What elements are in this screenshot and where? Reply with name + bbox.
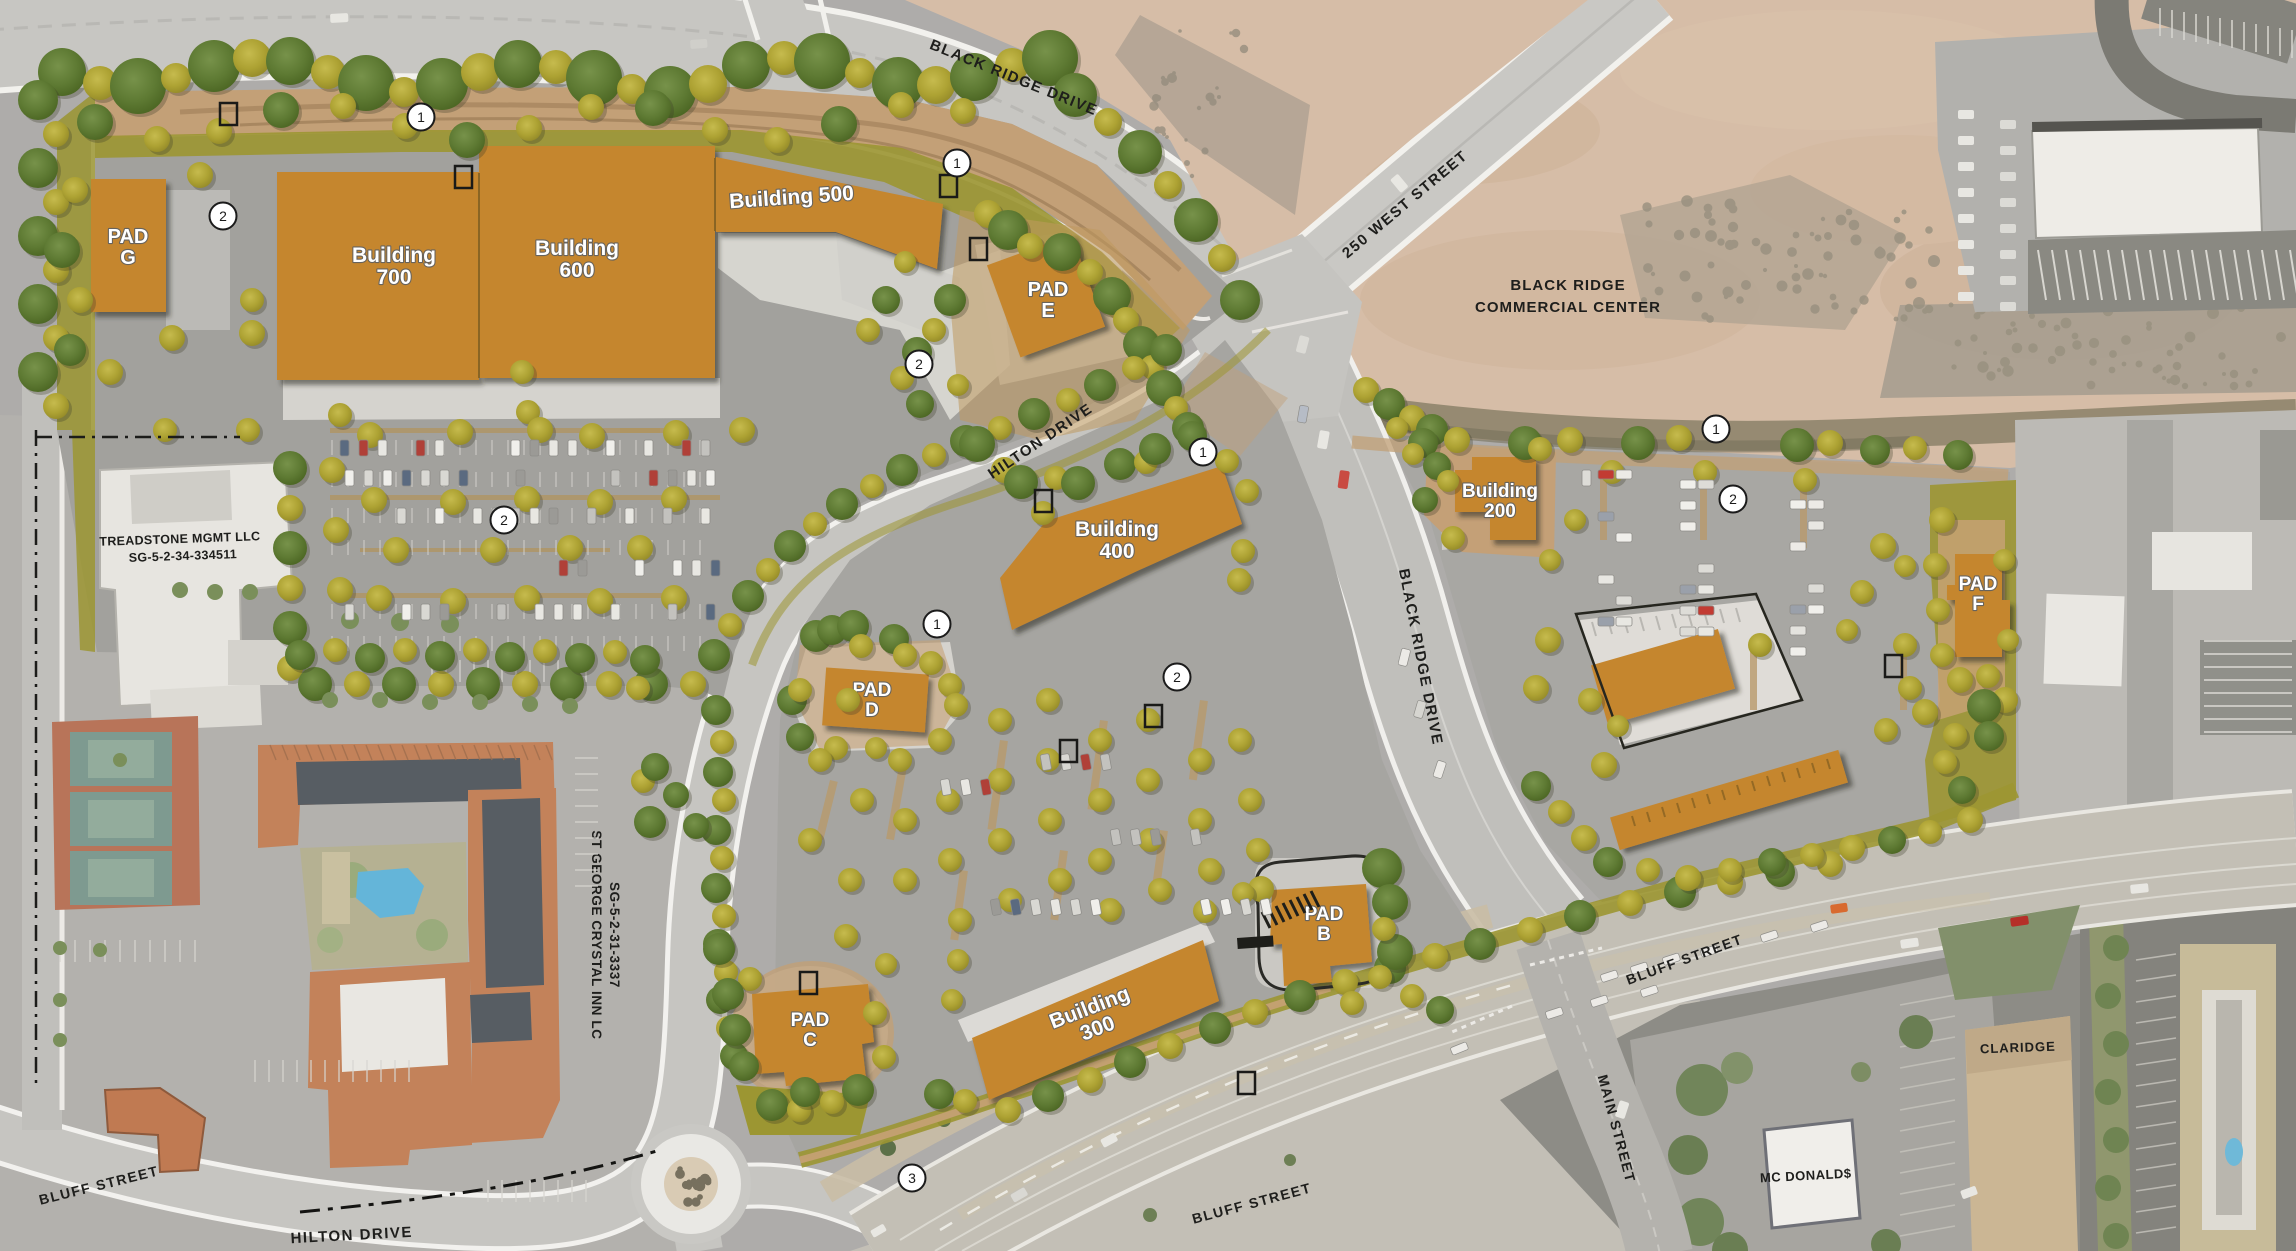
- svg-text:2: 2: [500, 512, 508, 528]
- svg-text:1: 1: [417, 109, 425, 125]
- svg-text:SG-5-2-31-3337: SG-5-2-31-3337: [607, 882, 622, 988]
- svg-text:ST GEORGE CRYSTAL INN LC: ST GEORGE CRYSTAL INN LC: [589, 830, 604, 1039]
- svg-text:1: 1: [953, 155, 961, 171]
- svg-text:BLACK RIDGE: BLACK RIDGE: [1510, 277, 1625, 294]
- svg-text:COMMERCIAL CENTER: COMMERCIAL CENTER: [1475, 299, 1661, 316]
- svg-text:1: 1: [933, 616, 941, 632]
- svg-text:1: 1: [1199, 444, 1207, 460]
- svg-text:2: 2: [1729, 491, 1737, 507]
- svg-text:3: 3: [908, 1170, 916, 1186]
- svg-text:1: 1: [1712, 421, 1720, 437]
- svg-text:2: 2: [219, 208, 227, 224]
- svg-text:CLARIDGE: CLARIDGE: [1980, 1039, 2056, 1057]
- svg-text:2: 2: [915, 356, 923, 372]
- svg-text:2: 2: [1173, 669, 1181, 685]
